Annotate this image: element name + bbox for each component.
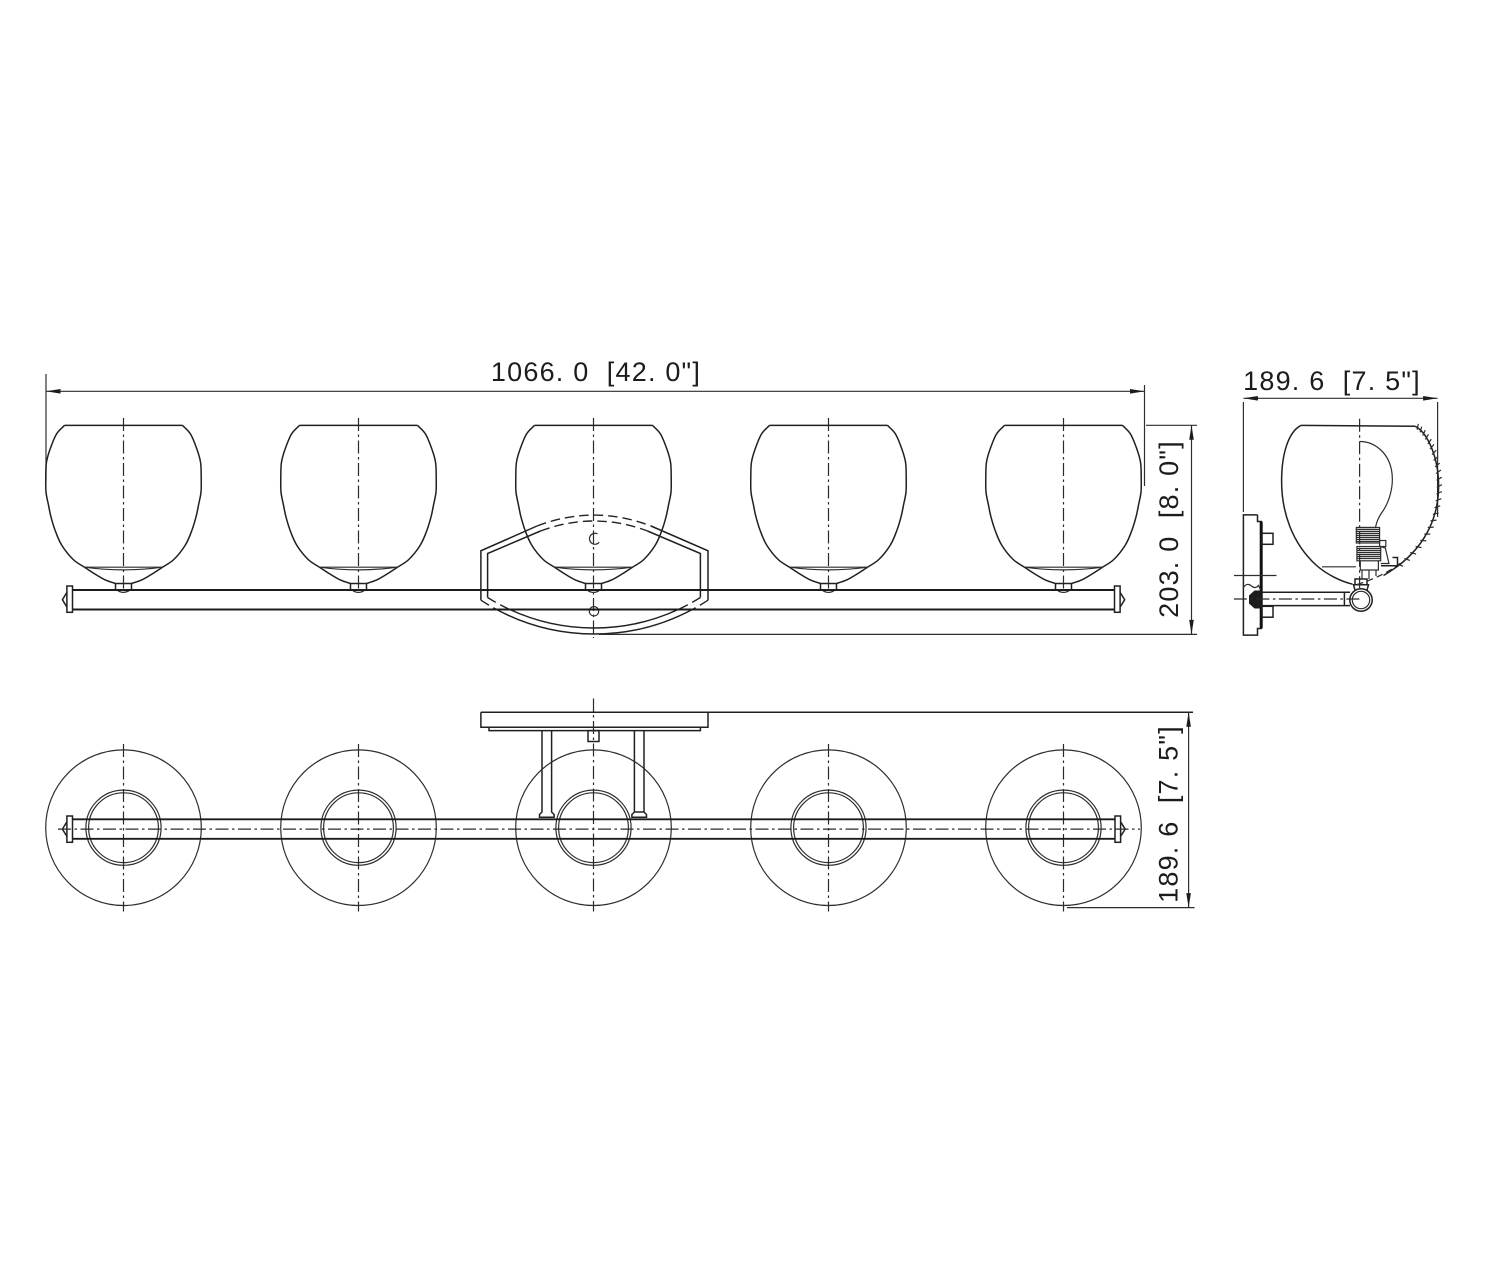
svg-text:1066. 0 [42. 0"]: 1066. 0 [42. 0"] bbox=[491, 357, 701, 387]
svg-text:189. 6 [7. 5"]: 189. 6 [7. 5"] bbox=[1154, 725, 1184, 903]
svg-text:189. 6 [7. 5"]: 189. 6 [7. 5"] bbox=[1243, 366, 1421, 396]
svg-text:203. 0 [8. 0"]: 203. 0 [8. 0"] bbox=[1154, 440, 1184, 618]
